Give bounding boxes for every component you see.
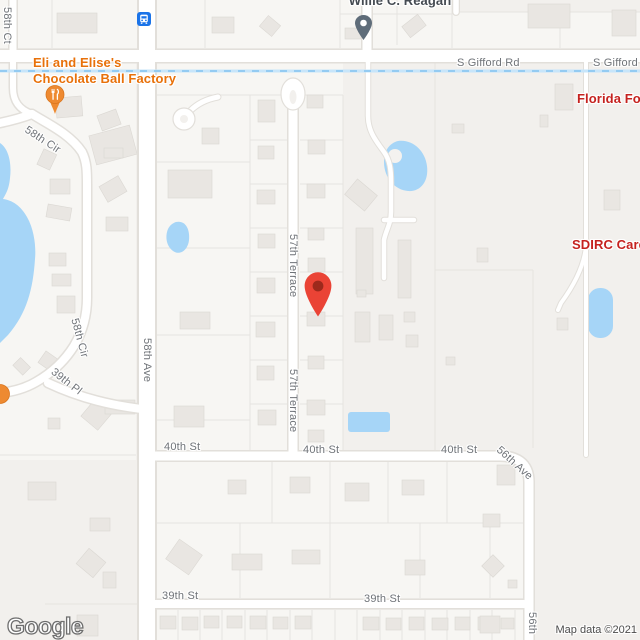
poi-label-sdirc[interactable]: SDIRC Care	[572, 237, 640, 253]
street-label-58th-ave: 58th Ave	[141, 338, 153, 382]
map-canvas[interactable]: { "map": { "provider_logo": "Google", "a…	[0, 0, 640, 640]
street-label-57th-terrace-2: 57th Terrace	[287, 369, 299, 432]
poi-label-willie-c-reagan[interactable]: Willie C. Reagan	[349, 0, 452, 9]
google-logo[interactable]: Google	[7, 613, 83, 640]
map-attribution: Map data ©2021	[556, 624, 638, 636]
place-pin-icon[interactable]	[354, 14, 373, 46]
street-label-40th-st: 40th St	[164, 441, 200, 453]
street-label-39th-st-2: 39th St	[364, 593, 400, 605]
destination-marker-icon[interactable]	[303, 271, 333, 323]
street-label-57th-terrace: 57th Terrace	[287, 234, 299, 297]
street-label-40th-st-2: 40th St	[303, 444, 339, 456]
street-label-56th: 56th	[526, 612, 538, 634]
restaurant-pin-icon[interactable]	[45, 84, 65, 120]
poi-label-chocolate-factory-line1[interactable]: Eli and Elise's	[33, 55, 121, 71]
street-label-s-gifford-rd: S Gifford Rd	[457, 57, 520, 69]
bus-station-icon[interactable]	[137, 12, 151, 31]
poi-label-florida[interactable]: Florida For	[577, 91, 640, 107]
street-label-58th-ct: 58th Ct	[1, 7, 13, 44]
street-label-40th-st-3: 40th St	[441, 444, 477, 456]
street-label-s-gifford-rd-2: S Gifford Rd	[593, 57, 640, 69]
street-label-39th-st: 39th St	[162, 590, 198, 602]
